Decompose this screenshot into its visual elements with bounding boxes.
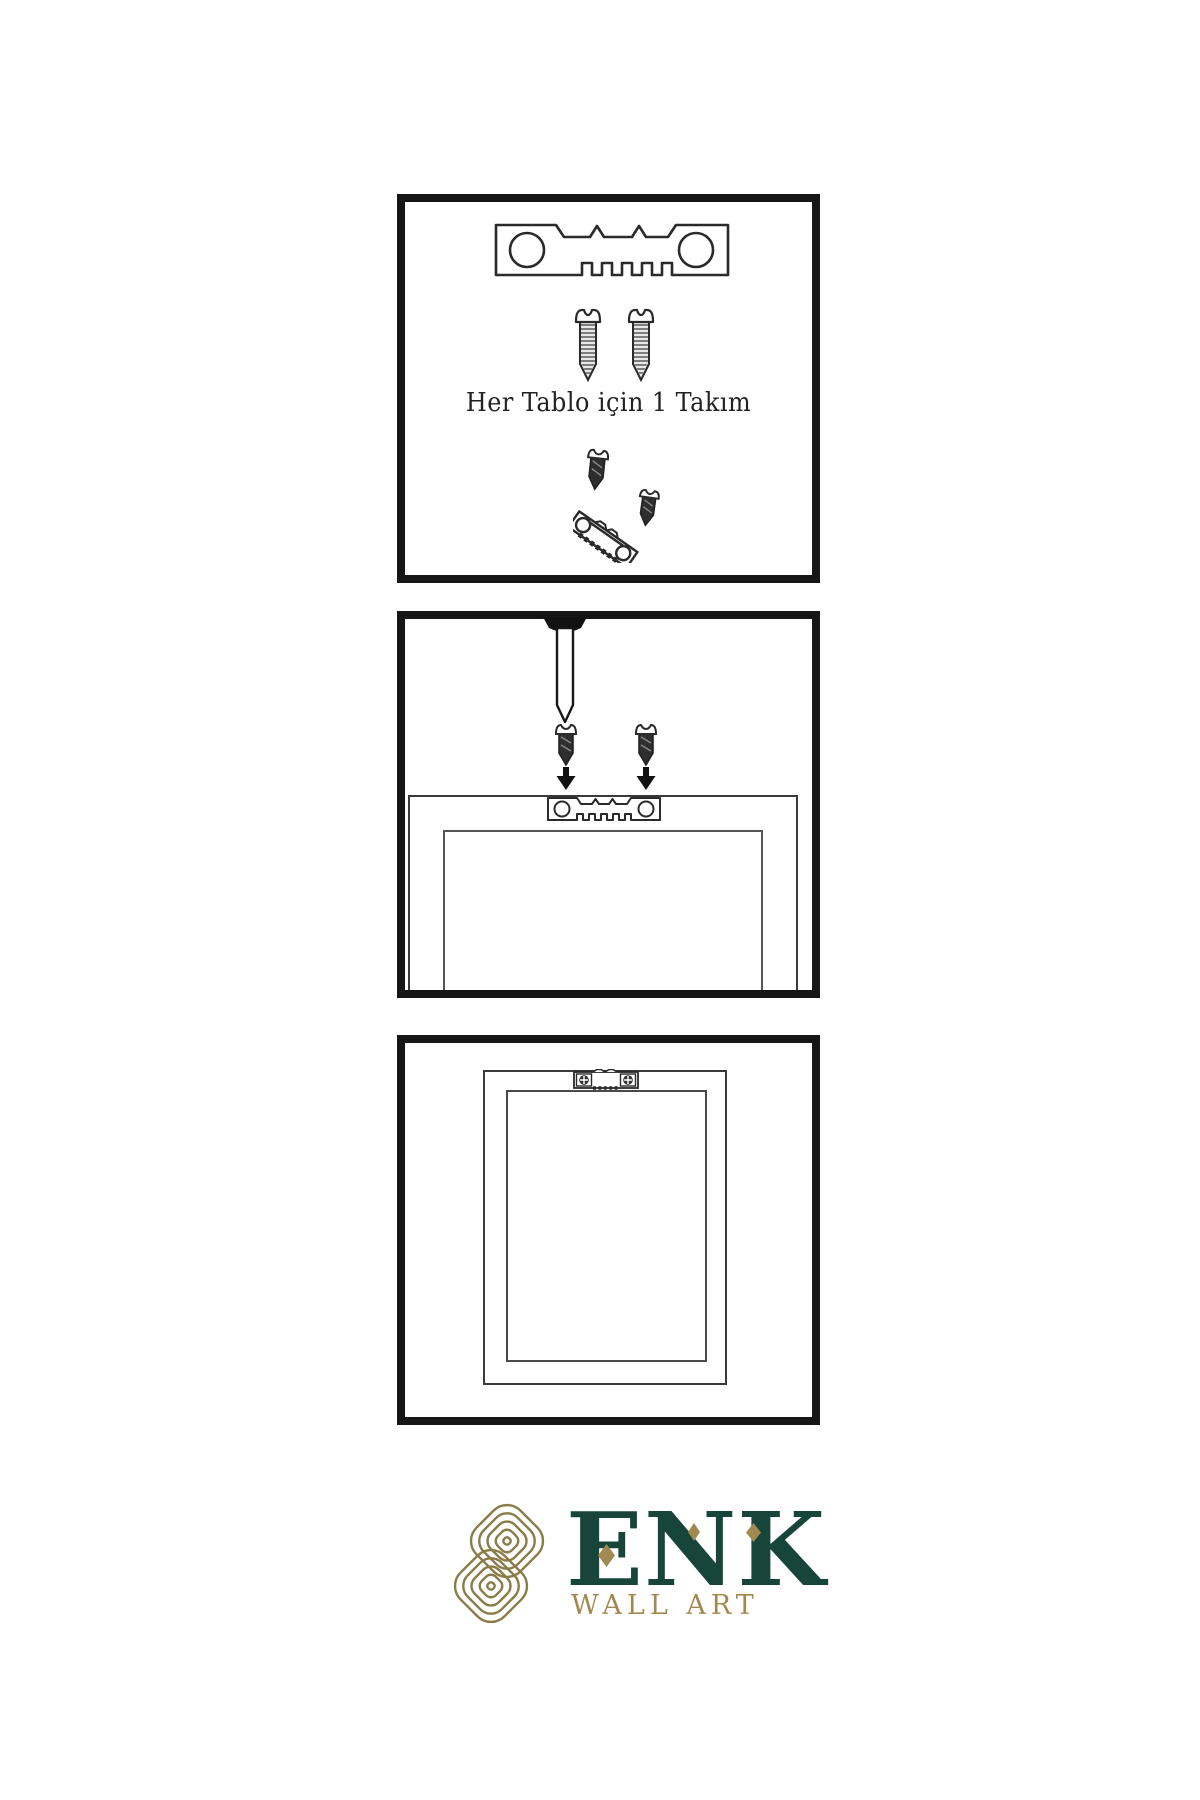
screw-icon (625, 307, 657, 382)
panel-hardware-kit: Her Tablo için 1 Takım (397, 194, 820, 583)
arrow-down-icon (556, 767, 576, 791)
panel-hung-frame (397, 1035, 820, 1425)
kit-caption: Her Tablo için 1 Takım (421, 388, 795, 418)
hung-canvas-outline (506, 1090, 707, 1362)
instruction-sheet: Her Tablo için 1 Takım (0, 0, 1200, 1800)
screw-icon (572, 307, 604, 382)
enk-knot-logo-icon (438, 1498, 562, 1630)
arrow-down-icon (636, 767, 656, 791)
wall-nail-icon (542, 617, 588, 725)
panel-mounting-steps (397, 611, 820, 998)
sawtooth-hanger-mounted-icon (547, 796, 661, 824)
sawtooth-hanger-screwed-icon (573, 1069, 639, 1091)
brand-tagline: WALL ART (571, 1592, 759, 1619)
screw-into-hanger-icon (573, 448, 678, 563)
screw-down-icon (633, 724, 659, 766)
screw-down-icon (553, 724, 579, 766)
canvas-back-outline (443, 830, 763, 990)
sawtooth-hanger-icon (494, 222, 730, 279)
